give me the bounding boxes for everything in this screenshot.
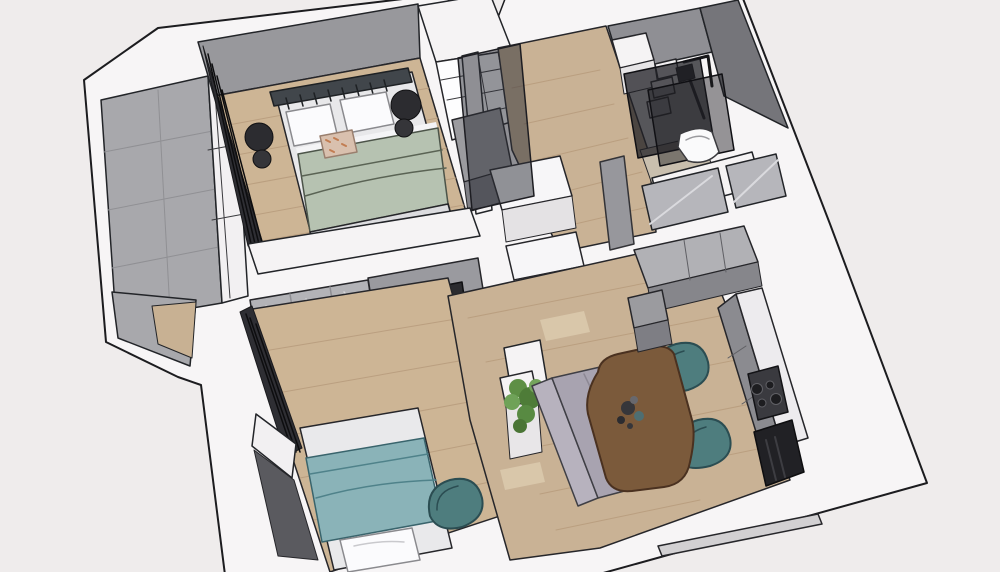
table-centerpiece-2 — [634, 411, 644, 421]
nightstand-right — [391, 90, 421, 120]
table-centerpiece-4 — [630, 396, 638, 404]
cooktop-burner-4 — [771, 394, 782, 405]
nightstand-left — [245, 123, 273, 151]
cooktop-burner-2 — [766, 381, 774, 389]
nightstand-left-stool — [253, 150, 271, 168]
table-centerpiece-5 — [627, 423, 633, 429]
bed-pillow-accent — [320, 130, 357, 158]
nightstand-right-stool — [395, 119, 413, 137]
table-centerpiece-3 — [617, 416, 625, 424]
balcony-upper-floor — [101, 76, 222, 321]
plant-foliage-3 — [504, 394, 520, 410]
cooktop-burner-1 — [752, 384, 763, 395]
floorplan-scene — [0, 0, 1000, 572]
plant-foliage-6 — [513, 419, 527, 433]
glass-partition — [458, 44, 534, 210]
cooktop-burner-3 — [758, 399, 766, 407]
floorplan-3d-render — [0, 0, 1000, 572]
